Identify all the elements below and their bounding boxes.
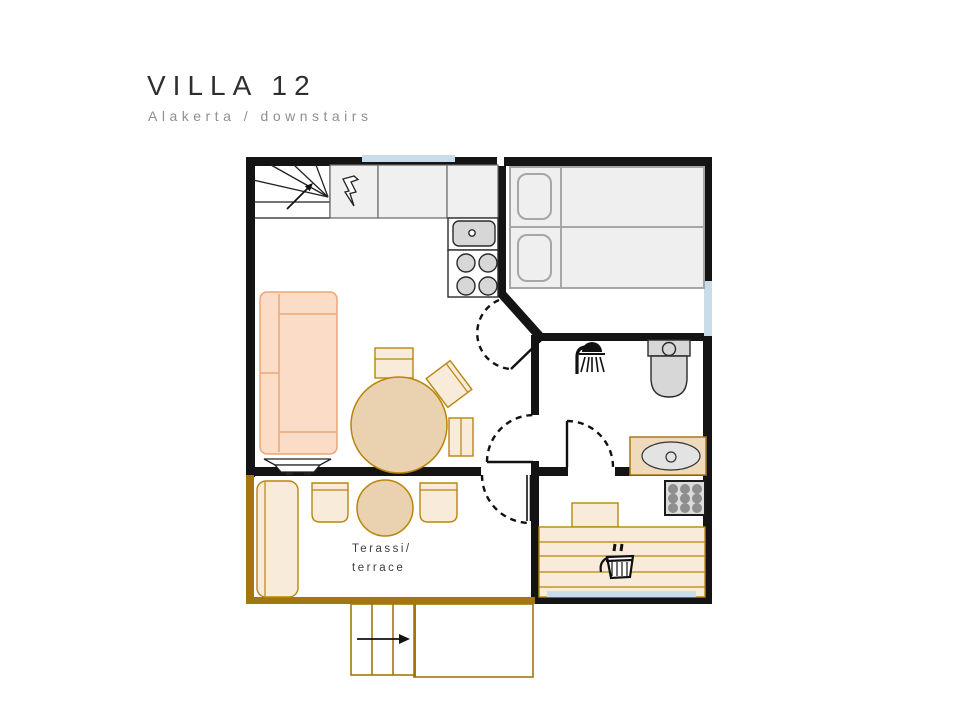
floor-plan-svg <box>0 0 960 720</box>
window-sauna <box>547 591 696 597</box>
terrace-door <box>482 475 531 523</box>
shower-icon <box>577 342 605 374</box>
terrace-bench <box>257 481 298 597</box>
bathroom-door <box>487 415 534 462</box>
toilet <box>648 340 690 397</box>
entry-landing <box>414 604 533 677</box>
terrace-chair-left <box>312 483 348 522</box>
sauna-door <box>567 421 613 467</box>
bedroom-beds <box>510 167 704 288</box>
stairs-up-arrow-icon <box>287 183 313 209</box>
kitchen-sink <box>448 218 498 250</box>
dining-chair-bottom <box>449 418 473 456</box>
pillow-2 <box>518 235 551 281</box>
terrace-table <box>357 480 413 536</box>
sofa <box>260 292 337 454</box>
washbasin <box>630 437 706 475</box>
floor-plan-page: VILLA 12 Alakerta / downstairs <box>0 0 960 720</box>
window-bedroom <box>704 281 712 336</box>
dining-chair-top <box>375 348 413 378</box>
dining-table <box>351 377 447 473</box>
staircase <box>253 165 330 218</box>
terrace-chair-right <box>420 483 457 522</box>
sauna-step <box>572 503 618 527</box>
sauna-heater <box>665 481 705 515</box>
pillow-1 <box>518 174 551 219</box>
stove-cooktop <box>448 250 498 297</box>
entry-steps <box>351 604 533 677</box>
window-kitchen <box>362 155 455 162</box>
